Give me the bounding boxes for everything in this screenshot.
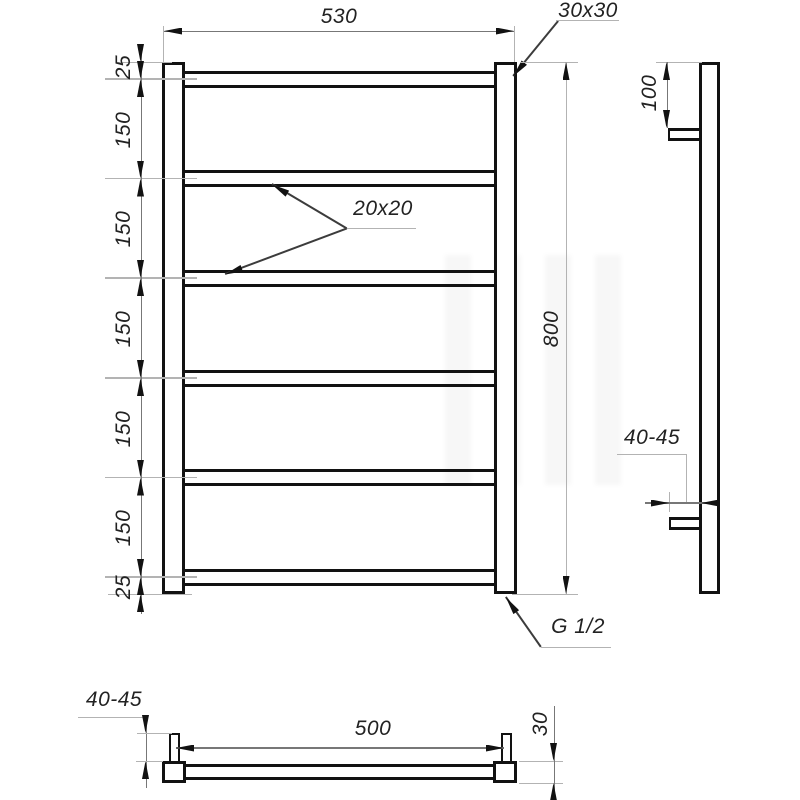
front-rung-2 [184, 170, 495, 187]
drawing-sheet: 530 30x30 25 150 150 150 150 150 25 20x2… [0, 0, 800, 800]
leader-20x20-line-lower [225, 228, 347, 275]
front-right-post [494, 62, 517, 594]
chain-arrow [137, 278, 144, 296]
dim-530-line [164, 31, 514, 32]
chain-arrow [137, 360, 144, 378]
dim-4045-side-shelf [617, 454, 687, 455]
chain-label-150-1: 150 [113, 95, 135, 165]
dim-30-ext-bottom [519, 783, 563, 784]
dim-30-label: 30 [530, 689, 552, 759]
dim-100-arrow-top [663, 62, 670, 80]
chain-arrow [137, 577, 144, 595]
chain-arrow [137, 161, 144, 179]
dim-500-label: 500 [333, 718, 413, 740]
dim-20x20-label: 20x20 [350, 198, 416, 220]
front-rung-4 [184, 370, 495, 387]
dim-100-arrow-bottom [663, 110, 670, 128]
chain-label-150-3: 150 [113, 294, 135, 364]
dim-4045-side-arrow-left [651, 500, 669, 507]
leader-g12-shelf [541, 647, 611, 648]
bottom-right-cap [493, 761, 517, 783]
front-rung-6 [184, 569, 495, 586]
chain-arrow [137, 79, 144, 97]
chain-label-25-top: 25 [113, 32, 135, 102]
chain-ext-5 [105, 477, 197, 478]
dim-500-line [176, 747, 504, 748]
side-bracket-bottom [669, 517, 699, 530]
side-post [699, 62, 720, 594]
dim-100-label: 100 [639, 58, 661, 128]
dim-30-ext-top [519, 761, 563, 762]
chain-label-150-2: 150 [113, 194, 135, 264]
dim-800-label: 800 [541, 294, 563, 364]
dim-g12-label: G 1/2 [543, 616, 613, 638]
chain-arrow [137, 44, 144, 62]
chain-arrow [137, 61, 144, 79]
dim-800-line [566, 62, 567, 594]
chain-ext-3 [105, 277, 197, 278]
bottom-rail [184, 764, 495, 780]
dim-800-arrow-top [563, 62, 570, 80]
bottom-left-cap [162, 761, 186, 783]
dim-800-arrow-bottom [563, 576, 570, 594]
dim-530-label: 530 [299, 6, 379, 28]
dim-4045-bottom-label: 40-45 [80, 689, 148, 711]
dim-800-ext-bottom [512, 594, 578, 595]
chain-arrow [137, 478, 144, 496]
dim-4045-bottom-arrow-bottom [142, 761, 149, 779]
dim-4045-bottom-shelf [78, 717, 147, 718]
dim-30-arrow-bottom [550, 783, 557, 800]
leader-20x20-shelf [347, 228, 416, 229]
dim-4045-side-connector [686, 454, 687, 503]
front-rung-5 [184, 469, 495, 486]
side-bracket-top [668, 128, 699, 141]
chain-ext-2 [105, 178, 197, 179]
chain-arrow [137, 260, 144, 278]
front-left-post [162, 62, 185, 594]
chain-arrow [137, 378, 144, 396]
dim-800-ext-top [520, 62, 578, 63]
chain-label-25-bottom: 25 [113, 552, 135, 622]
dim-530-arrow-right [496, 28, 514, 35]
dim-100-ext [656, 62, 702, 63]
chain-arrow [137, 179, 144, 197]
front-rung-1 [184, 71, 495, 88]
chain-dim-line [141, 44, 142, 614]
chain-arrow [137, 594, 144, 612]
dim-4045-side-label: 40-45 [618, 427, 686, 449]
dim-4045-bottom-ext-1 [137, 733, 172, 734]
chain-ext-4 [105, 377, 197, 378]
dim-4045-bottom-arrow-top [142, 715, 149, 733]
chain-label-150-4: 150 [113, 394, 135, 464]
dim-530-arrow-left [164, 28, 182, 35]
chain-arrow [137, 460, 144, 478]
dim-30x30-label: 30x30 [556, 0, 620, 22]
chain-arrow [137, 559, 144, 577]
dim-4045-bottom-ext-2 [136, 761, 163, 762]
